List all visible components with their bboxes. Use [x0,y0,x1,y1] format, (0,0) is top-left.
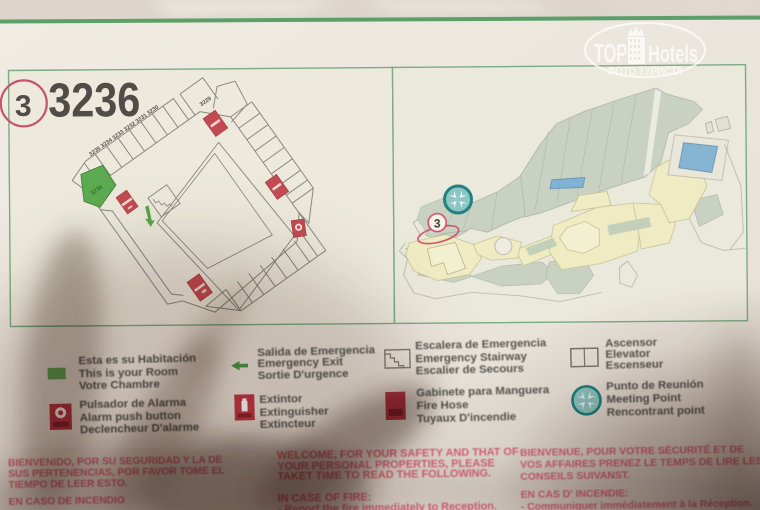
svg-text:3236: 3236 [48,74,140,128]
svg-text:Hotels: Hotels [648,41,698,68]
svg-text:3: 3 [15,90,32,123]
svg-text:3: 3 [434,217,441,231]
svg-text:ФОТО ТУРИСТА: ФОТО ТУРИСТА [607,66,683,78]
svg-text:TOP: TOP [594,38,627,68]
